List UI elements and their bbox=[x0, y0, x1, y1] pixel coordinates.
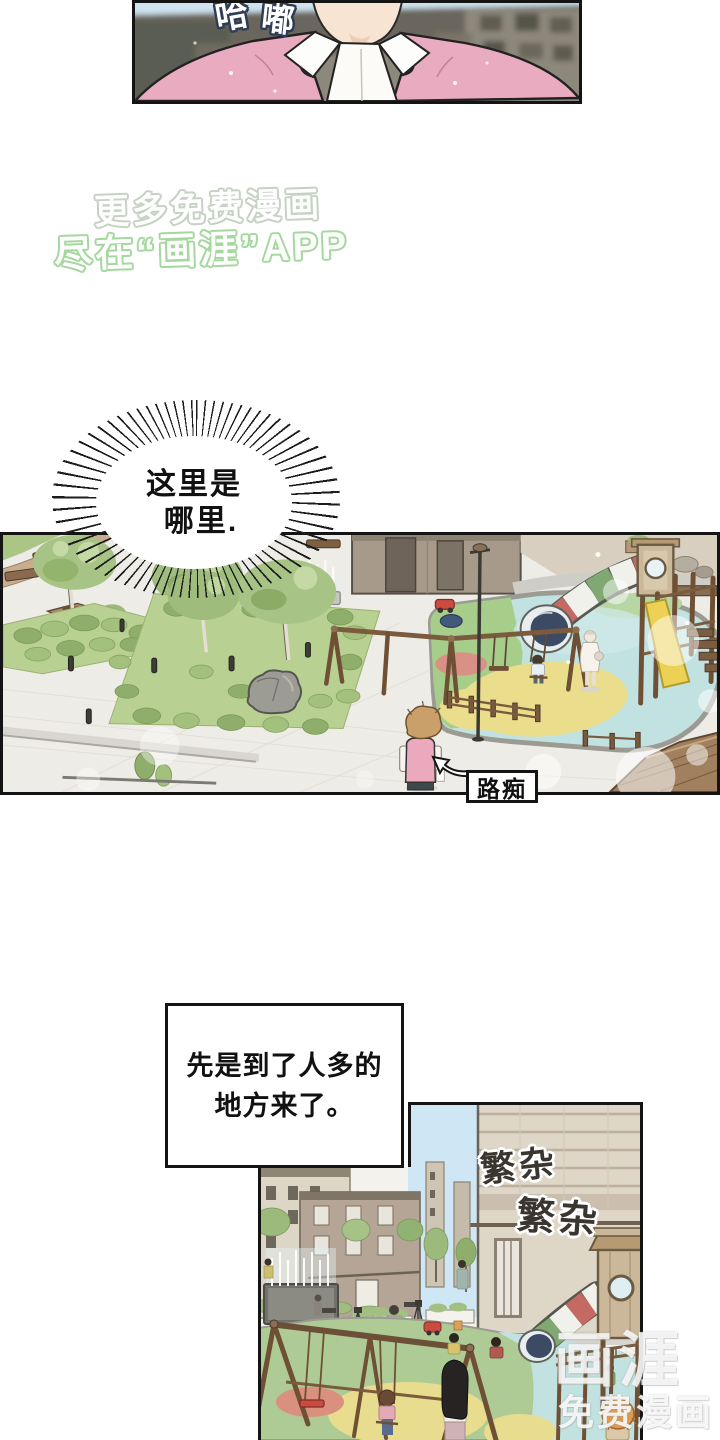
comic-page: 哈嘟 更多免费漫画 尽在“画涯”APP bbox=[0, 0, 720, 1440]
building-top-right bbox=[352, 535, 521, 594]
sfx-gulp-text: 哈嘟 bbox=[215, 0, 295, 37]
play-tower bbox=[632, 539, 680, 596]
arrow-icon bbox=[430, 749, 470, 777]
sfx-gulp-char1: 哈 bbox=[211, 0, 252, 40]
speech-line1: 这里是 bbox=[146, 466, 242, 503]
narration-line1: 先是到了人多的 bbox=[187, 1046, 383, 1086]
narration-box: 先是到了人多的 地方来了。 bbox=[165, 1003, 404, 1168]
narration-line2: 地方来了。 bbox=[215, 1086, 355, 1126]
speech-line2: 哪里. bbox=[150, 503, 238, 540]
closeup-scene-illustration bbox=[135, 3, 579, 101]
panel-closeup: 哈嘟 bbox=[132, 0, 582, 104]
sfx-gulp-char2: 嘟 bbox=[259, 0, 297, 43]
sfx-busy-2: 繁杂 bbox=[515, 1184, 603, 1245]
promo-watermark-line2: 尽在“画涯”APP bbox=[53, 214, 350, 279]
caption-label: 路痴 bbox=[466, 770, 538, 803]
speech-bubble-burst: 这里是 哪里. bbox=[52, 400, 340, 598]
speech-bubble-body: 这里是 哪里. bbox=[96, 436, 292, 569]
mother-long-hair bbox=[442, 1360, 468, 1440]
brand-tagline: 免费漫画 bbox=[558, 1384, 714, 1436]
